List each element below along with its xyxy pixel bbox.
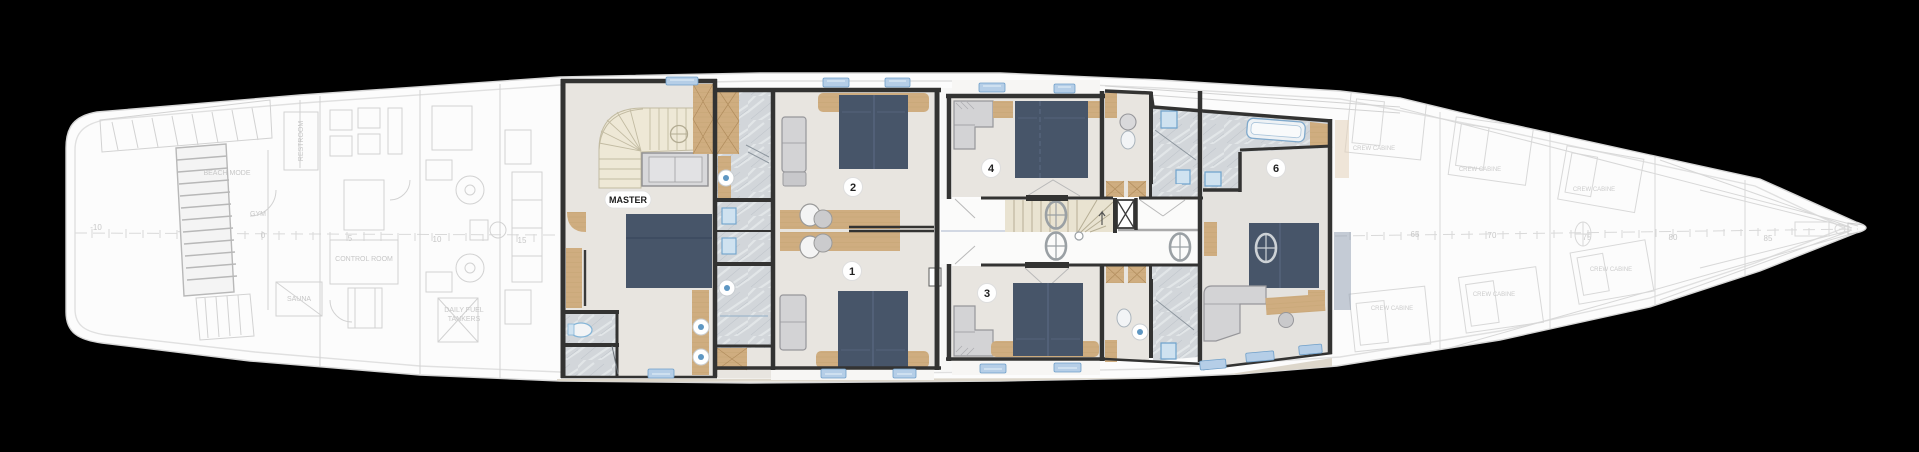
svg-text:15: 15: [518, 236, 527, 245]
svg-text:4: 4: [988, 163, 995, 175]
svg-text:CREW CABINE: CREW CABINE: [1473, 292, 1515, 298]
svg-text:3: 3: [984, 288, 990, 300]
svg-text:BEACH MODE: BEACH MODE: [203, 170, 250, 177]
svg-text:CREW CABINE: CREW CABINE: [1573, 187, 1615, 193]
svg-text:TANKERS: TANKERS: [448, 316, 481, 323]
svg-text:RESTROOM: RESTROOM: [298, 121, 305, 162]
svg-text:SAUNA: SAUNA: [287, 296, 311, 303]
svg-text:65: 65: [1411, 230, 1420, 239]
svg-text:2: 2: [850, 182, 856, 194]
svg-text:1: 1: [849, 266, 855, 278]
svg-text:MASTER: MASTER: [609, 195, 648, 205]
svg-text:GYM: GYM: [250, 211, 266, 218]
svg-text:CREW CABINE: CREW CABINE: [1459, 167, 1501, 173]
svg-text:DAILY FUEL: DAILY FUEL: [444, 307, 484, 314]
svg-text:CREW CABINE: CREW CABINE: [1371, 306, 1413, 312]
svg-text:CREW CABINE: CREW CABINE: [1590, 267, 1632, 273]
svg-text:85: 85: [1764, 234, 1773, 243]
svg-text:0: 0: [261, 231, 266, 240]
svg-text:5: 5: [348, 234, 353, 243]
svg-text:-10: -10: [90, 223, 102, 232]
svg-text:6: 6: [1273, 163, 1279, 175]
svg-text:10: 10: [433, 235, 442, 244]
svg-text:CONTROL ROOM: CONTROL ROOM: [335, 256, 393, 263]
svg-text:CREW CABINE: CREW CABINE: [1353, 146, 1395, 152]
svg-text:80: 80: [1669, 233, 1678, 242]
svg-text:70: 70: [1488, 231, 1497, 240]
